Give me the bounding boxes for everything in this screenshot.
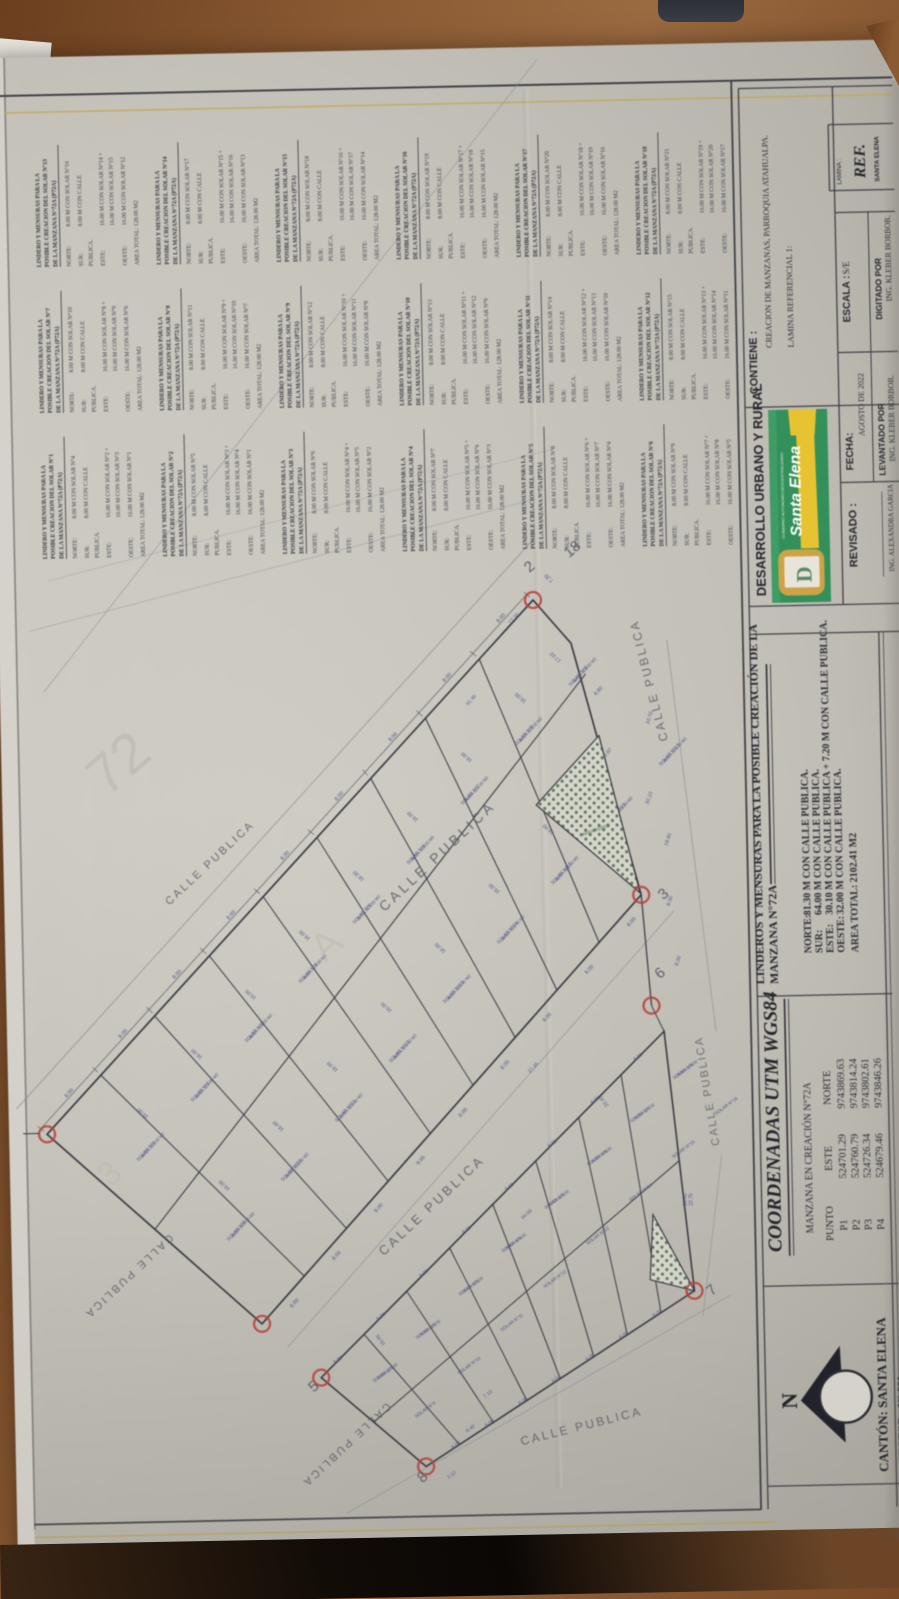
svg-text:16.00 M CON SOLAR N°17: 16.00 M CON SOLAR N°17 — [348, 152, 356, 221]
svg-text:16.00 M CON SOLAR N°20: 16.00 M CON SOLAR N°20 — [708, 144, 716, 213]
svg-text:16.00 M CON SOLAR N°1: 16.00 M CON SOLAR N°1 — [126, 452, 134, 518]
svg-text:NORTE:: NORTE: — [313, 532, 319, 553]
svg-text:PUBLICA.: PUBLICA. — [454, 523, 461, 550]
svg-text:8.00 M CON CALLE: 8.00 M CON CALLE — [563, 456, 570, 508]
svg-text:8.00 M CON CALLE: 8.00 M CON CALLE — [557, 165, 564, 217]
svg-text:MANZANA N°72A: MANZANA N°72A — [765, 884, 781, 984]
svg-text:OESTE:: OESTE: — [608, 527, 614, 547]
svg-text:16.00 M CON SOLAR N°6: 16.00 M CON SOLAR N°6 — [474, 444, 482, 510]
svg-text:ESTE:: ESTE: — [464, 388, 470, 404]
svg-text:SUR:: SUR: — [82, 399, 88, 413]
svg-text:PUBLICA.: PUBLICA. — [448, 231, 455, 258]
svg-text:16.00 M CON SOLAR N°4: 16.00 M CON SOLAR N°4 — [234, 449, 242, 515]
svg-text:OESTE:: OESTE: — [249, 534, 255, 554]
svg-text:16.00 M CON SOLAR N°14: 16.00 M CON SOLAR N°14 — [711, 290, 719, 359]
svg-text:SANTA ELENA: SANTA ELENA — [873, 136, 881, 182]
svg-text:PUBLICA.: PUBLICA. — [568, 229, 575, 256]
svg-text:16.00 M CON SOLAR N°19: 16.00 M CON SOLAR N°19 — [588, 147, 596, 216]
svg-text:8.00 M CON SOLAR N°21: 8.00 M CON SOLAR N°21 — [664, 148, 672, 214]
svg-text:16.00 M CON SOLAR N°8: 16.00 M CON SOLAR N°8 — [363, 301, 371, 367]
svg-text:ESTE:: ESTE: — [587, 532, 593, 548]
svg-text:SUR:: SUR: — [565, 535, 571, 549]
svg-text:ESTE:: ESTE: — [224, 393, 230, 409]
svg-text:8.00 M CON SOLAR N°14: 8.00 M CON SOLAR N°14 — [547, 297, 555, 363]
svg-text:16.00 M CON SOLAR N°18: 16.00 M CON SOLAR N°18 — [468, 149, 476, 218]
svg-text:OESTE:: OESTE: — [836, 916, 848, 953]
svg-text:16.00 M CON SOLAR N°5: 16.00 M CON SOLAR N°5 — [726, 439, 734, 505]
svg-text:8.00 M CON CALLE: 8.00 M CON CALLE — [77, 175, 84, 227]
svg-text:SUR:: SUR: — [562, 389, 568, 403]
svg-text:PUBLICA.: PUBLICA. — [331, 380, 338, 407]
svg-text:SUR:: SUR: — [205, 542, 211, 556]
svg-text:8.00 M CON CALLE: 8.00 M CON CALLE — [197, 172, 204, 224]
svg-text:SUR:: SUR: — [439, 245, 445, 259]
svg-text:8.00 M CON CALLE: 8.00 M CON CALLE — [323, 461, 330, 513]
svg-text:PUBLICA.: PUBLICA. — [91, 385, 98, 412]
svg-text:NORTE:: NORTE: — [669, 379, 675, 400]
svg-text:OESTE:: OESTE: — [126, 391, 132, 411]
svg-text:SUR:: SUR: — [199, 250, 205, 264]
svg-text:FECHA:: FECHA: — [845, 432, 857, 470]
svg-text:NORTE:: NORTE: — [433, 530, 439, 551]
svg-text:SUR:: SUR: — [322, 394, 328, 408]
svg-text:ESTE:: ESTE: — [700, 237, 706, 253]
svg-text:8.00 M CON CALLE: 8.00 M CON CALLE — [677, 162, 684, 214]
svg-text:524726.34: 524726.34 — [862, 1133, 874, 1179]
svg-text:16.00 M CON SOLAR N°13: 16.00 M CON SOLAR N°13 — [240, 154, 248, 223]
svg-text:NORTE:: NORTE: — [552, 527, 558, 548]
svg-text:8.00 M CON CALLE: 8.00 M CON CALLE — [443, 459, 450, 511]
svg-text:8.00 M CON CALLE: 8.00 M CON CALLE — [203, 464, 210, 516]
svg-text:SUR:: SUR: — [85, 545, 91, 559]
svg-text:SUR:: SUR: — [445, 537, 451, 551]
svg-text:REF.: REF. — [852, 144, 870, 179]
svg-text:OESTE:: OESTE: — [129, 537, 135, 557]
svg-text:NORTE:: NORTE: — [309, 386, 315, 407]
svg-text:OESTE:: OESTE: — [728, 524, 734, 544]
svg-text:16.00 M CON SOLAR N°5: 16.00 M CON SOLAR N°5 — [354, 447, 362, 513]
svg-text:16.00 M CON SOLAR N°4: 16.00 M CON SOLAR N°4 — [606, 442, 614, 508]
svg-text:SUR:: SUR: — [325, 540, 331, 554]
svg-text:SUR:: SUR: — [679, 240, 685, 254]
svg-text:8.00 M CON SOLAR N°8: 8.00 M CON SOLAR N°8 — [550, 446, 558, 509]
svg-text:PUBLICA.: PUBLICA. — [571, 375, 578, 402]
svg-text:NORTE:: NORTE: — [426, 238, 432, 259]
svg-text:ESTE:: ESTE: — [584, 386, 590, 402]
svg-text:SUR:: SUR: — [442, 391, 448, 405]
svg-text:ESTE:: ESTE: — [221, 247, 227, 263]
svg-text:524701.29: 524701.29 — [837, 1134, 849, 1179]
svg-text:PUBLICA.: PUBLICA. — [211, 382, 218, 409]
svg-text:ESTE:: ESTE: — [580, 240, 586, 256]
svg-text:16.00 M CON SOLAR N°3: 16.00 M CON SOLAR N°3 — [486, 444, 494, 510]
svg-text:16.00 M CON SOLAR N°2: 16.00 M CON SOLAR N°2 — [366, 447, 374, 513]
svg-text:16.00 M CON SOLAR N°15: 16.00 M CON SOLAR N°15 — [108, 157, 116, 226]
svg-text:16.00 M CON SOLAR N°7: 16.00 M CON SOLAR N°7 — [594, 442, 602, 508]
svg-text:16.00 M CON SOLAR N°12: 16.00 M CON SOLAR N°12 — [471, 295, 479, 364]
svg-text:OESTE:: OESTE: — [362, 240, 368, 260]
svg-text:16.00 M CON SOLAR N°9: 16.00 M CON SOLAR N°9 — [483, 298, 491, 364]
svg-text:SUR:: SUR: — [79, 253, 85, 267]
svg-text:16.00 M CON SOLAR N°1: 16.00 M CON SOLAR N°1 — [246, 449, 254, 515]
svg-text:16.00 M CON SOLAR N°10: 16.00 M CON SOLAR N°10 — [603, 293, 611, 362]
svg-text:P1: P1 — [839, 1219, 850, 1230]
svg-text:OESTE:: OESTE: — [722, 233, 728, 253]
svg-text:8.00 M CON SOLAR N°11: 8.00 M CON SOLAR N°11 — [187, 305, 195, 371]
svg-text:ESTE:: ESTE: — [704, 383, 710, 399]
svg-text:PUBLICA.: PUBLICA. — [88, 239, 95, 266]
svg-text:8.00 M CON CALLE: 8.00 M CON CALLE — [440, 313, 447, 365]
svg-text:NORTE:: NORTE: — [190, 389, 196, 410]
svg-text:ESTE: ESTE — [824, 1146, 836, 1171]
svg-text:N: N — [777, 1393, 802, 1410]
svg-text:16.00 M CON SOLAR N°15: 16.00 M CON SOLAR N°15 — [480, 149, 488, 218]
svg-text:ESTE:: ESTE: — [707, 529, 713, 545]
svg-text:8.00 M CON CALLE: 8.00 M CON CALLE — [83, 466, 90, 518]
svg-text:OESTE:: OESTE: — [365, 386, 371, 406]
svg-text:OESTE:: OESTE: — [369, 532, 375, 552]
svg-text:OESTE:: OESTE: — [489, 529, 495, 549]
svg-text:REVISADO :: REVISADO : — [847, 503, 860, 567]
svg-text:SUR:: SUR: — [685, 532, 691, 546]
svg-text:OESTE:: OESTE: — [242, 243, 248, 263]
svg-text:P3: P3 — [864, 1219, 875, 1230]
svg-text:SUR:: SUR: — [202, 396, 208, 410]
svg-text:NORTE:: NORTE: — [73, 537, 79, 558]
svg-text:ESCALA :: ESCALA : — [841, 275, 853, 322]
svg-text:16.00 M CON SOLAR N°6: 16.00 M CON SOLAR N°6 — [123, 306, 131, 372]
svg-text:PUBLICA.: PUBLICA. — [574, 521, 581, 548]
svg-text:OESTE:: OESTE: — [122, 245, 128, 265]
svg-text:9743814.24: 9743814.24 — [848, 1058, 860, 1109]
svg-text:NORTE:: NORTE: — [546, 235, 552, 256]
svg-text:D: D — [791, 566, 816, 582]
svg-text:16.00 M CON SOLAR N°13: 16.00 M CON SOLAR N°13 — [591, 293, 599, 362]
svg-text:LAMINA REFERENCIAL 1:: LAMINA REFERENCIAL 1: — [784, 246, 796, 348]
svg-text:22.75: 22.75 — [688, 1193, 694, 1206]
svg-text:S/E: S/E — [841, 261, 851, 275]
svg-text:8.00 M CON CALLE: 8.00 M CON CALLE — [320, 315, 327, 367]
svg-text:CONTIENE :: CONTIENE : — [747, 331, 760, 395]
svg-text:524760.79: 524760.79 — [850, 1134, 862, 1179]
svg-text:NORTE:: NORTE: — [666, 233, 672, 254]
svg-text:NORTE:: NORTE: — [429, 384, 435, 405]
svg-text:NORTE:: NORTE: — [672, 525, 678, 546]
svg-text:PUBLICA.: PUBLICA. — [328, 234, 335, 261]
svg-text:8.00 M CON SOLAR N°15: 8.00 M CON SOLAR N°15 — [667, 294, 675, 360]
svg-text:PUBLICA.: PUBLICA. — [208, 236, 215, 263]
svg-text:OESTE:: OESTE: — [246, 389, 252, 409]
svg-text:ESTE:: ESTE: — [101, 250, 107, 266]
svg-text:16.00 M CON SOLAR N°8: 16.00 M CON SOLAR N°8 — [714, 439, 722, 505]
svg-text:P2: P2 — [851, 1219, 862, 1230]
svg-text:OESTE:: OESTE: — [602, 235, 608, 255]
svg-text:16.00 M CON SOLAR N°4 +: 16.00 M CON SOLAR N°4 + — [344, 442, 352, 513]
svg-text:16.00 M CON SOLAR N°17: 16.00 M CON SOLAR N°17 — [720, 144, 728, 213]
svg-text:16.00 M CON SOLAR N°12: 16.00 M CON SOLAR N°12 — [120, 157, 128, 226]
svg-text:8.00 M CON SOLAR N°4: 8.00 M CON SOLAR N°4 — [70, 456, 78, 519]
svg-text:ESTE:: ESTE: — [341, 245, 347, 261]
svg-text:PUBLICA.: PUBLICA. — [691, 372, 698, 399]
svg-text:8.00 M CON CALLE: 8.00 M CON CALLE — [560, 310, 567, 362]
svg-text:SUR:: SUR: — [319, 248, 325, 262]
svg-text:NORTE:: NORTE: — [66, 245, 72, 266]
svg-text:PUBLICA.: PUBLICA. — [688, 226, 695, 253]
svg-text:8.00 M CON SOLAR N°5: 8.00 M CON SOLAR N°5 — [190, 453, 198, 516]
svg-text:16.00 M CON SOLAR N°9: 16.00 M CON SOLAR N°9 — [111, 306, 119, 372]
svg-text:NORTE: NORTE — [822, 1070, 834, 1105]
svg-text:ESTE:: ESTE: — [825, 924, 837, 953]
svg-text:16.00 M CON SOLAR N°9 +: 16.00 M CON SOLAR N°9 + — [221, 298, 229, 369]
svg-text:8.00 M CON CALLE: 8.00 M CON CALLE — [680, 308, 687, 360]
svg-text:16.00 M CON SOLAR N°3: 16.00 M CON SOLAR N°3 — [114, 452, 122, 518]
svg-text:8.00 M CON SOLAR N°16: 8.00 M CON SOLAR N°16 — [64, 161, 72, 227]
svg-text:AGOSTO DE 2022: AGOSTO DE 2022 — [856, 373, 866, 436]
svg-text:16.00 M CON SOLAR N°10: 16.00 M CON SOLAR N°10 — [231, 300, 239, 369]
svg-text:PUBLICA.: PUBLICA. — [694, 518, 701, 545]
svg-text:8.00 M CON SOLAR N°7: 8.00 M CON SOLAR N°7 — [430, 448, 438, 511]
svg-text:PUBLICA.: PUBLICA. — [451, 377, 458, 404]
svg-text:NORTE:: NORTE: — [306, 240, 312, 261]
svg-text:PUBLICA.: PUBLICA. — [334, 526, 341, 553]
svg-text:8.00 M CON SOLAR N°19: 8.00 M CON SOLAR N°19 — [424, 153, 432, 219]
svg-text:8.00 M CON SOLAR N°6: 8.00 M CON SOLAR N°6 — [310, 451, 318, 514]
svg-text:8.00 M CON SOLAR N°10: 8.00 M CON SOLAR N°10 — [67, 307, 75, 373]
svg-text:8.00 M CON SOLAR N°12: 8.00 M CON SOLAR N°12 — [307, 302, 315, 368]
svg-text:SUR:: SUR: — [682, 386, 688, 400]
svg-text:OESTE:: OESTE: — [725, 378, 731, 398]
svg-text:ESTE:: ESTE: — [347, 537, 353, 553]
svg-text:OESTE:: OESTE: — [605, 381, 611, 401]
svg-text:NORTE:: NORTE: — [186, 243, 192, 264]
svg-text:16.00 M CON SOLAR N°16: 16.00 M CON SOLAR N°16 — [228, 154, 236, 223]
svg-text:8.00 M CON CALLE: 8.00 M CON CALLE — [80, 321, 87, 373]
svg-text:16.00 M CON SOLAR N°11: 16.00 M CON SOLAR N°11 — [351, 298, 359, 367]
svg-text:LAMINA :: LAMINA : — [837, 159, 844, 185]
svg-text:OESTE:: OESTE: — [485, 384, 491, 404]
svg-text:9743802.61: 9743802.61 — [860, 1058, 872, 1108]
svg-text:16.00 M CON SOLAR N°7: 16.00 M CON SOLAR N°7 — [243, 303, 251, 369]
svg-text:NORTE:: NORTE: — [70, 391, 76, 412]
svg-text:Santa Elena: Santa Elena — [787, 445, 806, 536]
svg-text:ESTE:: ESTE: — [467, 534, 473, 550]
svg-text:SUR:: SUR: — [814, 930, 825, 954]
svg-text:SUR:: SUR: — [559, 243, 565, 257]
svg-text:8.00 M CON CALLE: 8.00 M CON CALLE — [317, 170, 324, 222]
svg-text:8.00 M CON SOLAR N°17: 8.00 M CON SOLAR N°17 — [184, 158, 192, 224]
svg-text:PUBLICA.: PUBLICA. — [214, 528, 221, 555]
svg-text:PUNTO: PUNTO — [825, 1206, 837, 1241]
svg-text:ESTE:: ESTE: — [104, 396, 110, 412]
svg-text:NORTE:: NORTE: — [803, 915, 815, 954]
svg-text:ESTE:: ESTE: — [461, 242, 467, 258]
svg-text:NORTE:: NORTE: — [193, 535, 199, 556]
svg-text:8.00 M CON CALLE: 8.00 M CON CALLE — [200, 318, 207, 370]
svg-text:8.00 M CON SOLAR N°13: 8.00 M CON SOLAR N°13 — [427, 299, 435, 365]
svg-text:NORTE:: NORTE: — [549, 381, 555, 402]
svg-text:8.00 M CON SOLAR N°20: 8.00 M CON SOLAR N°20 — [544, 151, 552, 217]
svg-text:OESTE:: OESTE: — [482, 238, 488, 258]
svg-text:16.00 M CON SOLAR N°7 +: 16.00 M CON SOLAR N°7 + — [704, 434, 712, 505]
svg-text:ESTE:: ESTE: — [344, 391, 350, 407]
svg-text:8.00 M CON SOLAR N°9: 8.00 M CON SOLAR N°9 — [670, 443, 678, 506]
svg-text:16.00 M CON SOLAR N°14: 16.00 M CON SOLAR N°14 — [360, 152, 368, 221]
svg-text:8.00 M CON CALLE: 8.00 M CON CALLE — [683, 454, 690, 506]
svg-text:PUBLICA.: PUBLICA. — [94, 531, 101, 558]
svg-text:8.00 M CON CALLE: 8.00 M CON CALLE — [437, 167, 444, 219]
svg-text:ESTE:: ESTE: — [227, 539, 233, 555]
svg-text:8.00 M CON SOLAR N°18: 8.00 M CON SOLAR N°18 — [304, 156, 312, 222]
svg-text:ESTE:: ESTE: — [107, 542, 113, 558]
svg-text:16.00 M CON SOLAR N°11: 16.00 M CON SOLAR N°11 — [723, 290, 731, 359]
svg-text:9743869.63: 9743869.63 — [836, 1059, 848, 1109]
svg-text:16.00 M CON SOLAR N°16: 16.00 M CON SOLAR N°16 — [600, 147, 608, 216]
